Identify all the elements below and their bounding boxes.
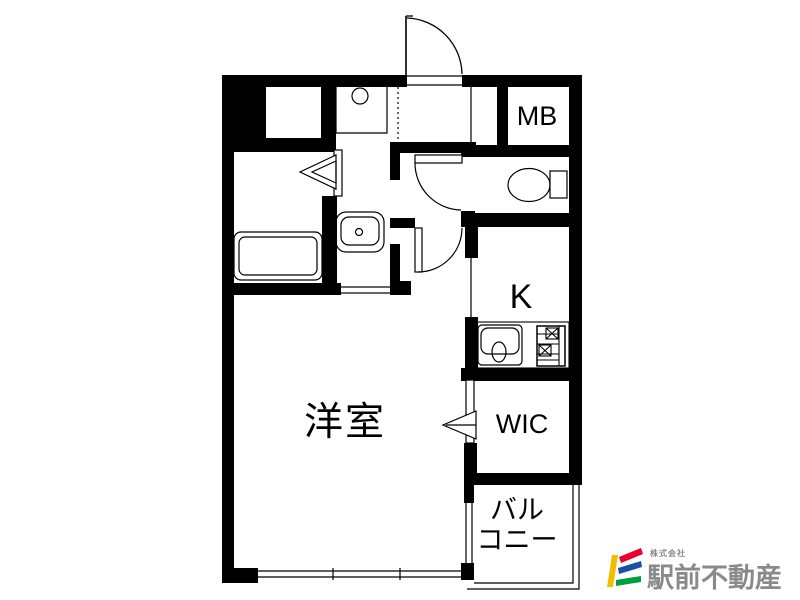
toilet-door-leaf [415,155,462,163]
wall-right [569,75,582,485]
kitchen-sink-icon [478,325,522,365]
bathroom-door [300,150,342,196]
wall-top-right [462,75,582,87]
wall-stub-corridor-south [393,281,411,295]
logo-bar-red [619,548,643,563]
label-balcony: バル コニー [460,495,574,555]
wall-bath-south [222,283,341,295]
wall-washroom-east-upper [390,142,400,180]
wall-bath-east-upper [321,85,336,152]
washroom-floor-edge [337,287,391,293]
bathtub-icon [234,232,322,280]
wall-corridor-band [390,218,415,228]
wall-wic-south [464,473,582,485]
toilet-icon [508,169,567,202]
floorplan-drawing [0,0,800,600]
company-logo: 株式会社 駅前不動産 [605,543,800,593]
wall-kitchen-west-lower [465,317,478,372]
wall-toilet-south [461,213,582,227]
floorplan-image: 洋室 K MB WIC バル コニー 株式会社 駅前不動産 [0,0,800,600]
label-meter-box: MB [505,102,569,130]
stove-icon [537,326,565,366]
wall-bottom-left-corner [222,568,258,583]
wall-bath-north [222,138,336,152]
entrance-door [406,16,462,85]
windows [257,502,472,580]
label-kitchen: K [491,280,551,316]
label-wic: WIC [482,410,562,438]
living-door-swing-arc [418,228,462,272]
company-logo-mark-icon [605,543,647,593]
washing-machine-pan-icon [352,88,368,104]
entrance-door-swing-arc [407,18,462,74]
washer-pan-outline [336,87,387,133]
company-name-text: 駅前不動産 [647,556,782,595]
toilet-door [415,155,462,210]
wall-bottom-right-stub [461,563,474,580]
wall-kitchen-south [461,368,582,381]
logo-bar-green [616,576,641,586]
label-balcony-line2: コニー [460,525,574,555]
logo-bar-blue [618,561,642,574]
wall-bath-east-lower [322,196,337,295]
wall-kitchen-west-upper [465,223,478,258]
toilet-door-swing-arc [415,163,461,210]
pillar-top-left [222,75,266,140]
counter-outline [477,322,569,368]
bathroom-door-fold-triangle [300,155,336,189]
living-door [415,228,462,272]
kitchen-counter [477,322,569,368]
south-window [257,568,462,580]
label-balcony-line1: バル [460,495,574,525]
washbasin-icon [336,212,384,252]
living-door-leaf [415,228,422,272]
label-western-room: 洋室 [280,403,410,444]
wall-mb-toilet-divider [461,145,582,157]
wic-door [443,380,476,443]
